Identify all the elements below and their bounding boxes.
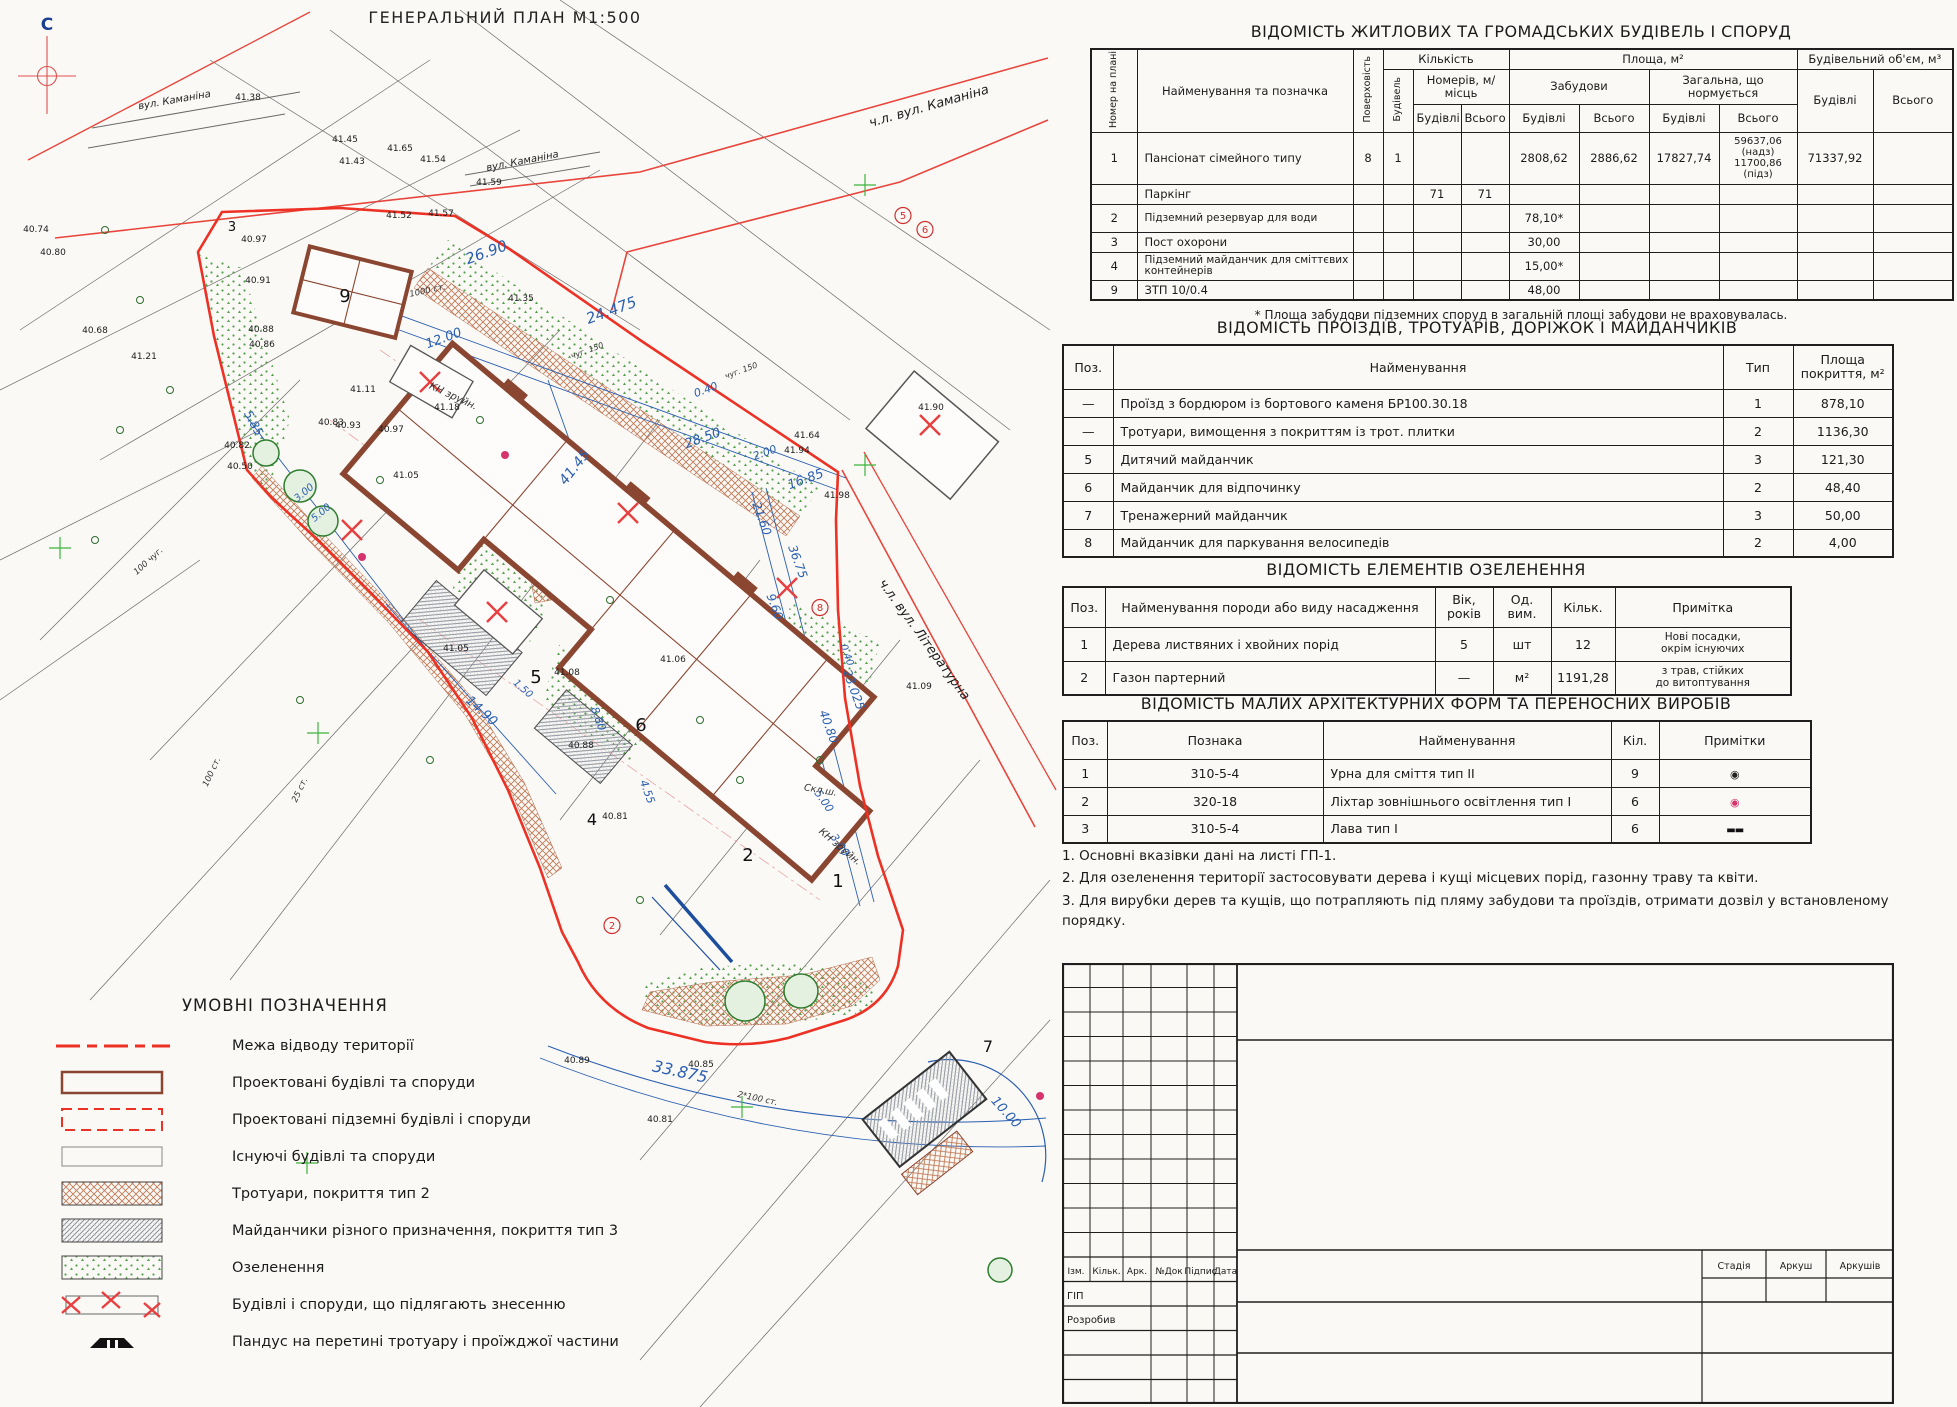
table-cell: [1873, 204, 1953, 232]
table-cell: Паркінг: [1137, 184, 1353, 204]
legend-item-label: Існуючі будівлі та споруди: [232, 1149, 435, 1165]
table-cell: Тротуари, вимощення з покриттям із трот.…: [1113, 417, 1723, 445]
col-header: Будівель: [1383, 69, 1413, 132]
table-cell: Газон партерний: [1105, 661, 1435, 695]
table-cell: [1383, 184, 1413, 204]
table-cell: [1873, 132, 1953, 184]
table-cell: 7: [1063, 501, 1113, 529]
table-row: 3 310-5-4 Лава тип I 6 ▬▬: [1063, 815, 1811, 843]
table-cell: [1461, 280, 1509, 300]
stamp-stage-header: Стадія: [1718, 1261, 1751, 1272]
table-cell: 6: [1611, 815, 1659, 843]
col-header: Примітки: [1659, 721, 1811, 759]
col-header: Поз.: [1063, 721, 1107, 759]
drawing-sheet: ГЕНЕРАЛЬНИЙ ПЛАН М1:500: [0, 0, 1957, 1407]
stamp-col-header: Дата: [1214, 1267, 1237, 1277]
stamp-col-header: Арк.: [1127, 1267, 1147, 1277]
table-cell: 78,10*: [1509, 204, 1579, 232]
stamp-sheet-header: Аркуш: [1780, 1261, 1813, 1272]
table-cell: [1873, 184, 1953, 204]
plan-label-dim: 24.475: [584, 293, 639, 328]
stamp-sheets-header: Аркушів: [1840, 1261, 1881, 1272]
table-cell: 1136,30: [1793, 417, 1893, 445]
col-header: Од. вим.: [1493, 587, 1551, 627]
table-cell: 2: [1723, 529, 1793, 557]
table-cell: 2: [1063, 787, 1107, 815]
plan-label-big: 7: [983, 1037, 993, 1056]
table-cell: [1649, 184, 1719, 204]
north-axis-marker: [18, 36, 76, 114]
col-header: Будівлі: [1413, 104, 1461, 132]
legend-item-label: Межа відводу території: [232, 1038, 414, 1054]
plan-label-misc: 100 чуг.: [132, 546, 166, 578]
col-header: Поз.: [1063, 587, 1105, 627]
table-cell: ◉: [1659, 787, 1811, 815]
plan-label-misc: чуг. 150: [724, 361, 759, 381]
plan-label-elev: 41.11: [350, 385, 376, 395]
table-cell: Нові посадки, окрім існуючих: [1615, 627, 1791, 661]
legend-item-sidewalks: Тротуари, покриття тип 2: [52, 1175, 732, 1212]
plan-label-north: С: [41, 15, 53, 35]
plan-label-elev: 41.90: [918, 403, 944, 413]
table-cell: Майданчик для відпочинку: [1113, 473, 1723, 501]
table-cell: 310-5-4: [1107, 759, 1323, 787]
legend-item-label: Тротуари, покриття тип 2: [232, 1186, 430, 1202]
col-header-label: Будівель: [1393, 77, 1403, 121]
bench-icon: ▬▬: [1726, 825, 1743, 836]
plan-label-street: вул. Каманіна: [485, 148, 559, 174]
table-cell: [1353, 280, 1383, 300]
col-header: Будівлі: [1649, 104, 1719, 132]
plan-label-elev: 41.08: [554, 668, 580, 678]
plan-label-elev: 40.86: [249, 340, 275, 350]
plan-label-dim: 0.40: [692, 379, 719, 400]
projected-building-symbol: [52, 1069, 174, 1097]
table-cell: 5: [1435, 627, 1493, 661]
buildings-table-block: ВІДОМІСТЬ ЖИТЛОВИХ ТА ГРОМАДСЬКИХ БУДІВЕ…: [1062, 22, 1957, 322]
table-row: 1 Пансіонат сімейного типу 8 1 2808,62 2…: [1091, 132, 1953, 184]
existing-building-east: [866, 371, 998, 499]
building-9-group: [293, 246, 411, 337]
table-cell: [1383, 252, 1413, 280]
legend-item-greenery: Озеленення: [52, 1249, 732, 1286]
legend-item-label: Будівлі і споруди, що підлягають знесенн…: [232, 1297, 566, 1313]
table-cell: [1413, 280, 1461, 300]
table-cell: 1: [1383, 132, 1413, 184]
plan-label-elev: 41.54: [420, 155, 446, 165]
table-cell: Лава тип I: [1323, 815, 1611, 843]
table-cell: шт: [1493, 627, 1551, 661]
table-cell: [1413, 252, 1461, 280]
table-cell: [1413, 232, 1461, 252]
plan-label-circ: 5: [900, 211, 906, 222]
plan-label-dim: 10.00: [988, 1094, 1024, 1132]
ramp-symbol: [52, 1328, 174, 1356]
legend: УМОВНІ ПОЗНАЧЕННЯ Межа відводу території…: [52, 996, 732, 1360]
table-cell: 1191,28: [1551, 661, 1615, 695]
table-cell: [1649, 232, 1719, 252]
table-cell: 8: [1353, 132, 1383, 184]
plan-label-big: 1: [832, 871, 843, 892]
plan-label-elev: 40.50: [227, 462, 253, 472]
table-cell: 9: [1091, 280, 1137, 300]
table-cell: 9: [1611, 759, 1659, 787]
underground-building-symbol: [52, 1106, 174, 1134]
table-cell: 48,00: [1509, 280, 1579, 300]
legend-item-playgrounds: Майданчики різного призначення, покриття…: [52, 1212, 732, 1249]
plan-label-elev: 40.88: [568, 741, 594, 751]
col-header: Площа покриття, м²: [1793, 345, 1893, 389]
table-cell: [1719, 184, 1797, 204]
note-line: 3. Для вирубки дерев та кущів, що потрап…: [1062, 891, 1920, 932]
table-cell: 3: [1091, 232, 1137, 252]
table-cell: Проїзд з бордюром із бортового каменя БР…: [1113, 389, 1723, 417]
plan-label-dim: 26.90: [463, 236, 510, 268]
stamp-col-header: Підпис: [1184, 1267, 1216, 1277]
plan-label-big: 4: [587, 810, 597, 829]
maf-table: Поз. Познака Найменування Кіл. Примітки …: [1062, 720, 1812, 844]
table-cell: 121,30: [1793, 445, 1893, 473]
table-cell: ◉: [1659, 759, 1811, 787]
plan-label-elev: 40.97: [378, 425, 404, 435]
note-line: 2. Для озеленення території застосовуват…: [1062, 868, 1920, 888]
plan-label-elev: 40.74: [23, 225, 49, 235]
col-header-label: Номер на плані: [1109, 51, 1119, 128]
col-header: Номер на плані: [1091, 49, 1137, 132]
col-header: Всього: [1461, 104, 1509, 132]
table-row: 5 Дитячий майданчик 3 121,30: [1063, 445, 1893, 473]
col-header: Будівлі: [1797, 69, 1873, 132]
col-header: Кільк.: [1551, 587, 1615, 627]
table-cell: 3: [1723, 445, 1793, 473]
buildings-table: Номер на плані Найменування та позначка …: [1090, 48, 1954, 301]
note-line: 1. Основні вказівки дані на листі ГП-1.: [1062, 846, 1920, 866]
title-block-stamp: Ізм. Кільк. Арк. №Док Підпис Дата ГІП Ро…: [1062, 963, 1894, 1404]
table-cell: [1797, 204, 1873, 232]
table-cell: 1: [1723, 389, 1793, 417]
col-header: Тип: [1723, 345, 1793, 389]
table-cell: 71337,92: [1797, 132, 1873, 184]
plan-label-elev: 40.81: [602, 812, 628, 822]
table-cell: [1797, 184, 1873, 204]
lamp-icon: ◉: [1730, 796, 1740, 809]
col-header: Всього: [1873, 69, 1953, 132]
table-cell: 3: [1723, 501, 1793, 529]
boundary-line-symbol: [52, 1032, 174, 1060]
table-row: 2 320-18 Ліхтар зовнішнього освітлення т…: [1063, 787, 1811, 815]
table-cell: 12: [1551, 627, 1615, 661]
plan-label-elev: 40.97: [241, 235, 267, 245]
table-cell: [1461, 232, 1509, 252]
plan-label-big: 2: [742, 845, 753, 866]
table-cell: 30,00: [1509, 232, 1579, 252]
table-cell: 320-18: [1107, 787, 1323, 815]
table-row: 1 310-5-4 Урна для сміття тип II 9 ◉: [1063, 759, 1811, 787]
col-header: Найменування: [1323, 721, 1611, 759]
legend-item-label: Проектовані підземні будівлі і споруди: [232, 1112, 531, 1128]
table-cell: [1353, 184, 1383, 204]
playground-pattern-symbol: [52, 1217, 174, 1245]
table-cell: [1353, 232, 1383, 252]
drives-table: Поз. Найменування Тип Площа покриття, м²…: [1062, 344, 1894, 558]
table-cell: [1649, 280, 1719, 300]
col-header: Номерів, м/місць: [1413, 69, 1509, 104]
plan-label-big: 9: [339, 286, 350, 307]
table-row: 8 Майданчик для паркування велосипедів 2…: [1063, 529, 1893, 557]
table-row: 2 Газон партерний — м² 1191,28 з трав, с…: [1063, 661, 1791, 695]
plan-label-elev: 40.93: [335, 421, 361, 431]
table-cell: [1413, 204, 1461, 232]
plan-label-elev: 40.68: [82, 326, 108, 336]
col-header: Будівельний об'єм, м³: [1797, 49, 1953, 69]
table-cell: [1383, 232, 1413, 252]
maf-table-block: ВІДОМІСТЬ МАЛИХ АРХІТЕКТУРНИХ ФОРМ ТА ПЕ…: [1062, 694, 1957, 844]
col-header: Площа, м²: [1509, 49, 1797, 69]
table-cell: [1719, 280, 1797, 300]
table-cell: [1719, 232, 1797, 252]
table-cell: Ліхтар зовнішнього освітлення тип I: [1323, 787, 1611, 815]
plan-label-elev: 41.57: [428, 209, 454, 219]
legend-item-label: Проектовані будівлі та споруди: [232, 1075, 475, 1091]
table-cell: Пост охорони: [1137, 232, 1353, 252]
col-header: Всього: [1719, 104, 1797, 132]
plan-label-elev: 41.94: [784, 446, 810, 456]
table-cell: 2: [1723, 473, 1793, 501]
legend-item-label: Майданчики різного призначення, покриття…: [232, 1223, 618, 1239]
table-cell: 2: [1723, 417, 1793, 445]
table-cell: [1509, 184, 1579, 204]
table-cell: 3: [1063, 815, 1107, 843]
legend-item-projected-buildings: Проектовані будівлі та споруди: [52, 1064, 732, 1101]
table-cell: [1719, 252, 1797, 280]
urn-icon: ◉: [1730, 768, 1740, 781]
table-cell: 1: [1063, 759, 1107, 787]
table-cell: [1873, 280, 1953, 300]
table-cell: [1797, 252, 1873, 280]
plan-label-elev: 41.05: [393, 471, 419, 481]
plan-label-elev: 41.65: [387, 144, 413, 154]
table-cell: [1797, 232, 1873, 252]
table-row: — Проїзд з бордюром із бортового каменя …: [1063, 389, 1893, 417]
stamp-role-developer: Розробив: [1067, 1315, 1116, 1326]
table-row: — Тротуари, вимощення з покриттям із тро…: [1063, 417, 1893, 445]
col-header: Поз.: [1063, 345, 1113, 389]
plan-label-elev: 40.88: [248, 325, 274, 335]
col-header: Найменування та позначка: [1137, 49, 1353, 132]
drives-table-block: ВІДОМІСТЬ ПРОЇЗДІВ, ТРОТУАРІВ, ДОРІЖОК І…: [1062, 318, 1957, 558]
table-cell: 6: [1063, 473, 1113, 501]
col-header: Поверховість: [1353, 49, 1383, 132]
col-header: Загальна, що нормується: [1649, 69, 1797, 104]
table-cell: [1461, 132, 1509, 184]
plan-label-elev: 41.06: [660, 655, 686, 665]
table-cell: [1413, 132, 1461, 184]
table-cell: 5: [1063, 445, 1113, 473]
plan-label-elev: 41.18: [434, 403, 460, 413]
plan-label-street: вул. Каманіна: [137, 88, 211, 113]
table-cell: 48,40: [1793, 473, 1893, 501]
greenery-table-block: ВІДОМІСТЬ ЕЛЕМЕНТІВ ОЗЕЛЕНЕННЯ Поз. Найм…: [1062, 560, 1957, 696]
table-cell: [1719, 204, 1797, 232]
plan-label-elev: 41.64: [794, 431, 820, 441]
buildings-table-title: ВІДОМІСТЬ ЖИТЛОВИХ ТА ГРОМАДСЬКИХ БУДІВЕ…: [1090, 22, 1952, 41]
plan-label-big: 6: [635, 715, 646, 736]
legend-title: УМОВНІ ПОЗНАЧЕННЯ: [182, 996, 732, 1015]
plan-label-misc: 100 ст.: [201, 756, 223, 789]
table-row: 2 Підземний резервуар для води 78,10*: [1091, 204, 1953, 232]
table-cell: [1579, 184, 1649, 204]
col-header: Кіл.: [1611, 721, 1659, 759]
legend-item-label: Озеленення: [232, 1260, 324, 1276]
stamp-col-header: Кільк.: [1092, 1267, 1120, 1277]
table-cell: Дерева листвяних і хвойних порід: [1105, 627, 1435, 661]
table-cell: [1579, 252, 1649, 280]
table-cell: [1579, 204, 1649, 232]
plan-label-elev: 41.43: [339, 157, 365, 167]
legend-item-ramp: Пандус на перетині тротуару і проїжджої …: [52, 1323, 732, 1360]
plan-label-elev: 41.09: [906, 682, 932, 692]
table-cell: 2808,62: [1509, 132, 1579, 184]
table-cell: [1873, 232, 1953, 252]
col-header: Найменування: [1113, 345, 1723, 389]
stamp-col-header: №Док: [1155, 1267, 1183, 1277]
plan-label-elev: 41.52: [386, 211, 412, 221]
table-cell: [1091, 184, 1137, 204]
plan-label-elev: 41.35: [508, 294, 534, 304]
general-notes: 1. Основні вказівки дані на листі ГП-1. …: [1062, 846, 1920, 933]
table-cell: Підземний майданчик для сміттєвих контей…: [1137, 252, 1353, 280]
table-cell: —: [1063, 417, 1113, 445]
table-cell: 1: [1063, 627, 1105, 661]
table-cell: 4: [1091, 252, 1137, 280]
table-cell: [1579, 280, 1649, 300]
table-cell: м²: [1493, 661, 1551, 695]
plan-label-misc: 25 ст.: [290, 776, 310, 804]
plan-label-elev: 41.05: [443, 644, 469, 654]
table-cell: [1461, 204, 1509, 232]
plan-label-big: 3: [228, 220, 236, 235]
table-cell: 4,00: [1793, 529, 1893, 557]
table-cell: [1353, 204, 1383, 232]
stamp-role-gip: ГІП: [1067, 1291, 1084, 1302]
plan-label-elev: 40.91: [245, 276, 271, 286]
col-header: Вік, років: [1435, 587, 1493, 627]
table-cell: Майданчик для паркування велосипедів: [1113, 529, 1723, 557]
table-cell: [1797, 280, 1873, 300]
table-cell: 59637,06 (надз) 11700,86 (підз): [1719, 132, 1797, 184]
stamp-col-header: Ізм.: [1067, 1267, 1084, 1277]
table-cell: 8: [1063, 529, 1113, 557]
table-cell: [1579, 232, 1649, 252]
table-cell: Дитячий майданчик: [1113, 445, 1723, 473]
table-cell: з трав, стійких до витоптування: [1615, 661, 1791, 695]
plan-label-circ: 8: [817, 603, 823, 614]
plan-label-axis: ч.л. вул. Каманіна: [867, 82, 990, 131]
table-cell: 2: [1091, 204, 1137, 232]
table-row: 3 Пост охорони 30,00: [1091, 232, 1953, 252]
table-cell: 878,10: [1793, 389, 1893, 417]
plan-label-big: 5: [530, 667, 541, 688]
plan-label-elev: 40.82: [224, 441, 250, 451]
sidewalk-pattern-symbol: [52, 1180, 174, 1208]
table-cell: 50,00: [1793, 501, 1893, 529]
plan-label-dim: 4.55: [637, 778, 658, 805]
col-header: Будівлі: [1509, 104, 1579, 132]
table-cell: [1461, 252, 1509, 280]
plan-label-elev: 41.45: [332, 135, 358, 145]
table-cell: 1: [1091, 132, 1137, 184]
plan-label-elev: 40.80: [40, 248, 66, 258]
table-cell: Підземний резервуар для води: [1137, 204, 1353, 232]
table-cell: Тренажерний майданчик: [1113, 501, 1723, 529]
col-header: Всього: [1579, 104, 1649, 132]
plan-label-circ: 2: [609, 921, 615, 932]
existing-building-symbol: [52, 1143, 174, 1171]
table-cell: —: [1063, 389, 1113, 417]
tables-column: ВІДОМІСТЬ ЖИТЛОВИХ ТА ГРОМАДСЬКИХ БУДІВЕ…: [1062, 0, 1957, 1407]
table-cell: [1649, 252, 1719, 280]
table-cell: 71: [1413, 184, 1461, 204]
plan-label-circ: 6: [922, 225, 928, 236]
legend-item-underground-buildings: Проектовані підземні будівлі і споруди: [52, 1101, 732, 1138]
table-cell: Пансіонат сімейного типу: [1137, 132, 1353, 184]
table-row: 1 Дерева листвяних і хвойних порід 5 шт …: [1063, 627, 1791, 661]
table-cell: ЗТП 10/0.4: [1137, 280, 1353, 300]
col-header-label: Поверховість: [1363, 56, 1373, 122]
table-cell: —: [1435, 661, 1493, 695]
col-header: Познака: [1107, 721, 1323, 759]
maf-table-title: ВІДОМІСТЬ МАЛИХ АРХІТЕКТУРНИХ ФОРМ ТА ПЕ…: [1062, 694, 1810, 713]
building-7-group: [860, 1052, 1006, 1195]
table-cell: [1649, 204, 1719, 232]
table-cell: 6: [1611, 787, 1659, 815]
table-row: 7 Тренажерний майданчик 3 50,00: [1063, 501, 1893, 529]
table-cell: Урна для сміття тип II: [1323, 759, 1611, 787]
table-row: 4 Підземний майданчик для сміттєвих конт…: [1091, 252, 1953, 280]
table-cell: [1353, 252, 1383, 280]
greenery-pattern-symbol: [52, 1254, 174, 1282]
table-cell: 2886,62: [1579, 132, 1649, 184]
table-cell: 15,00*: [1509, 252, 1579, 280]
table-cell: 71: [1461, 184, 1509, 204]
table-cell: [1383, 280, 1413, 300]
table-cell: 17827,74: [1649, 132, 1719, 184]
table-row: 9 ЗТП 10/0.4 48,00: [1091, 280, 1953, 300]
legend-item-existing-buildings: Існуючі будівлі та споруди: [52, 1138, 732, 1175]
table-row: Паркінг 71 71: [1091, 184, 1953, 204]
legend-item-boundary: Межа відводу території: [52, 1027, 732, 1064]
table-cell: [1383, 204, 1413, 232]
demolition-symbol: [52, 1291, 174, 1319]
greenery-table-title: ВІДОМІСТЬ ЕЛЕМЕНТІВ ОЗЕЛЕНЕННЯ: [1062, 560, 1790, 579]
col-header: Найменування породи або виду насадження: [1105, 587, 1435, 627]
table-cell: [1873, 252, 1953, 280]
col-header: Примітка: [1615, 587, 1791, 627]
plan-label-elev: 41.38: [235, 93, 261, 103]
legend-item-demolition: Будівлі і споруди, що підлягають знесенн…: [52, 1286, 732, 1323]
col-header: Кількість: [1383, 49, 1509, 69]
plan-label-elev: 41.98: [824, 491, 850, 501]
col-header: Забудови: [1509, 69, 1649, 104]
table-cell: ▬▬: [1659, 815, 1811, 843]
drives-table-title: ВІДОМІСТЬ ПРОЇЗДІВ, ТРОТУАРІВ, ДОРІЖОК І…: [1062, 318, 1892, 337]
table-cell: 310-5-4: [1107, 815, 1323, 843]
table-cell: 2: [1063, 661, 1105, 695]
plan-label-elev: 41.21: [131, 352, 157, 362]
greenery-table: Поз. Найменування породи або виду насадж…: [1062, 586, 1792, 696]
table-row: 6 Майданчик для відпочинку 2 48,40: [1063, 473, 1893, 501]
plan-label-elev: 41.59: [476, 178, 502, 188]
